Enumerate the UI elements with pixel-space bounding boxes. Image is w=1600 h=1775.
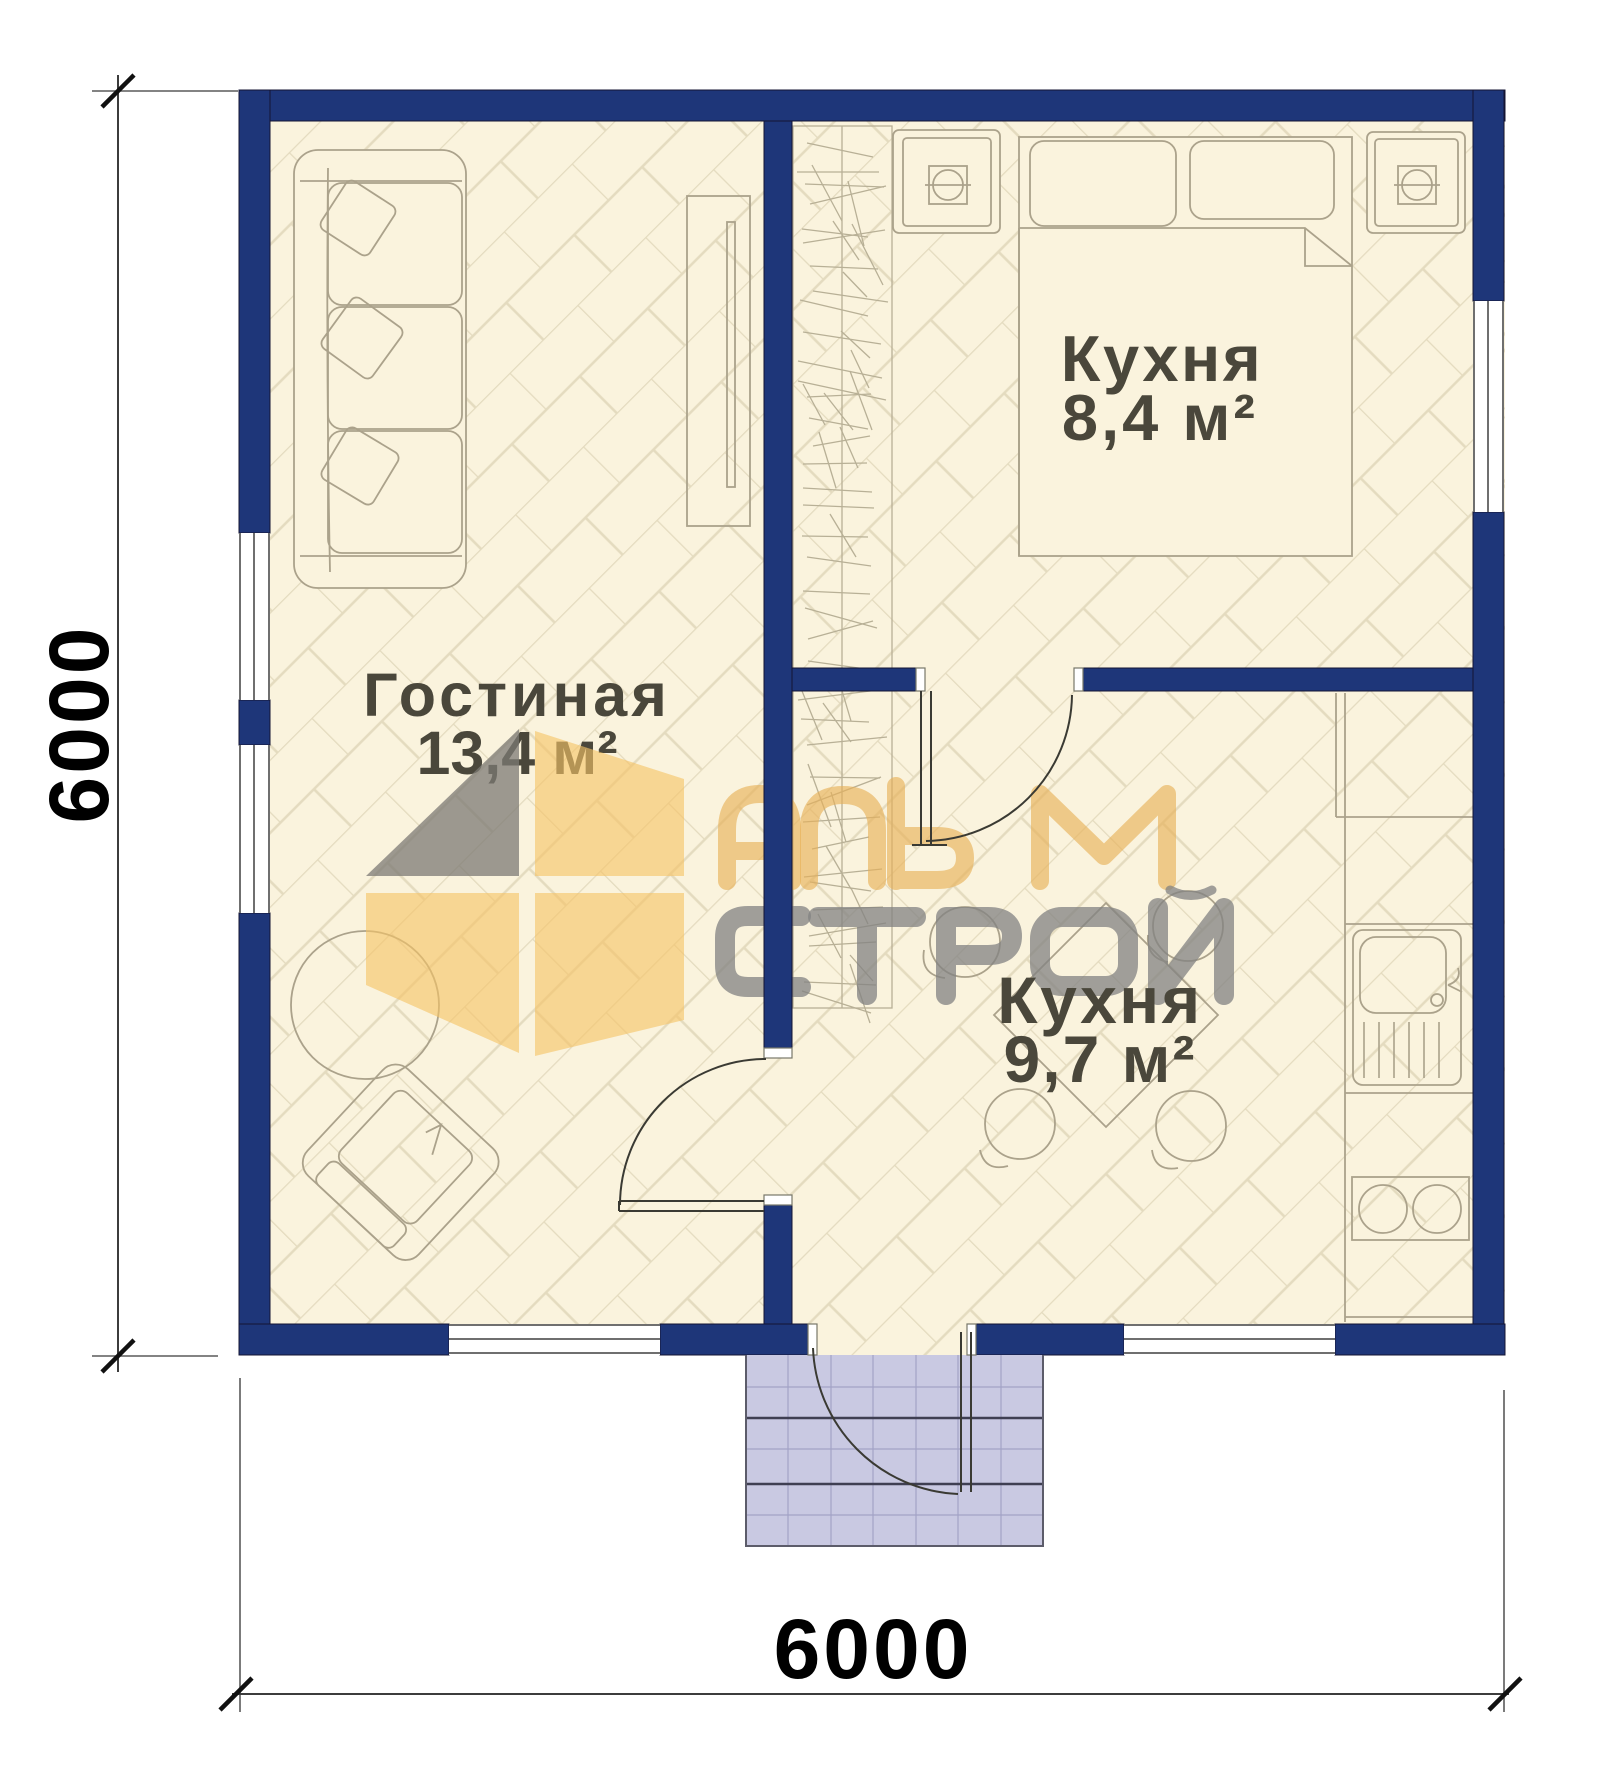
svg-text:8,4 м²: 8,4 м² [1062,381,1258,454]
svg-text:9,7 м²: 9,7 м² [1004,1022,1197,1096]
svg-text:6000: 6000 [774,1602,973,1696]
svg-text:6000: 6000 [32,625,126,824]
